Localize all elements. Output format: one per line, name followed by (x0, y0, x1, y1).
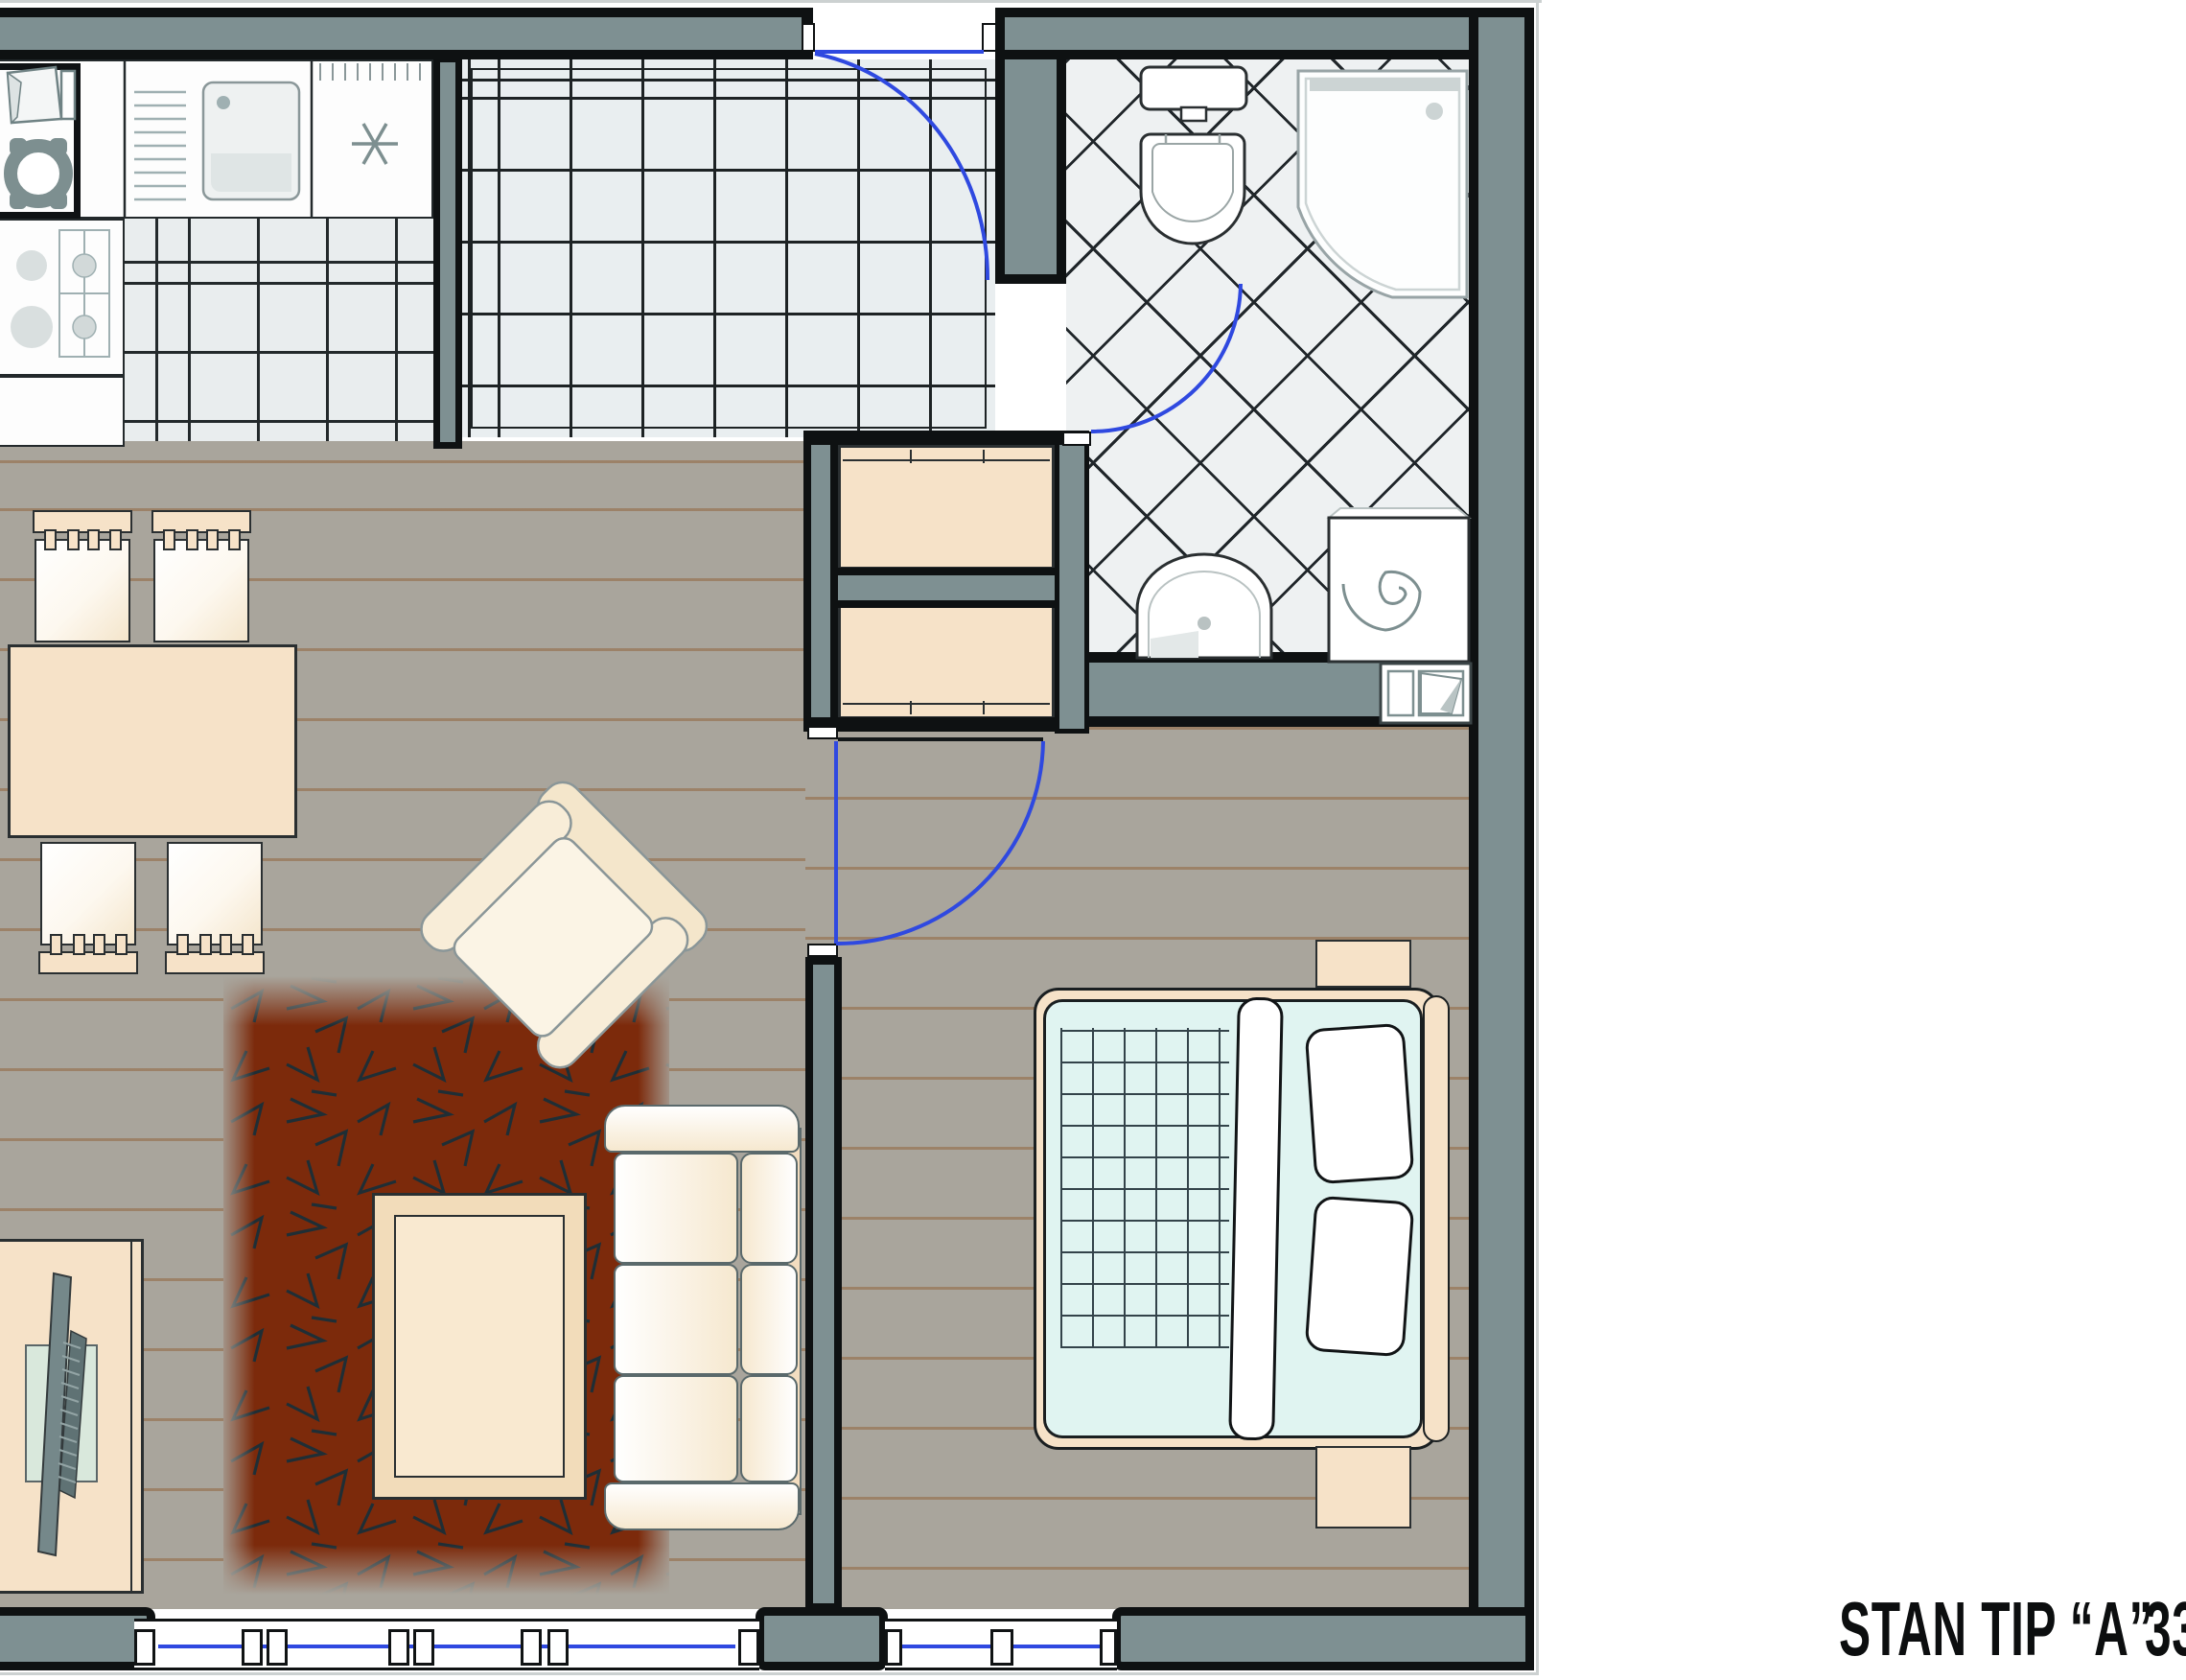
plan-overlay (0, 0, 1542, 1680)
plan-title-text: STAN TIP “A” (1839, 1596, 2153, 1663)
bathroom-door (1091, 284, 1241, 432)
freezer-star-icon (352, 124, 398, 164)
plan-frame-bottom (0, 1672, 1539, 1675)
bathroom-sink (1137, 554, 1271, 658)
tv (38, 1273, 86, 1555)
floor-plan-canvas: STAN TIP “A” 33 (0, 0, 2186, 1680)
entrance-door (815, 52, 988, 280)
fridge-fringe (320, 63, 420, 81)
toilet (1141, 67, 1246, 244)
bedroom-door (836, 739, 1043, 944)
kitchen-sink (203, 82, 299, 199)
vent-box (1381, 664, 1471, 723)
kitchen-drainboard (134, 92, 186, 199)
plan-area-number: 33 (2145, 1596, 2186, 1663)
stove-burners (11, 230, 109, 357)
plan-frame-top (0, 0, 1542, 3)
armchair (410, 775, 714, 1079)
corner-unit-contents (8, 67, 75, 209)
floor-plan (0, 0, 1542, 1680)
plan-frame-right (1536, 0, 1539, 1675)
corner-shower (1298, 71, 1467, 297)
washing-machine (1329, 508, 1469, 662)
plan-title: STAN TIP “A” 33 (1839, 1596, 2186, 1663)
